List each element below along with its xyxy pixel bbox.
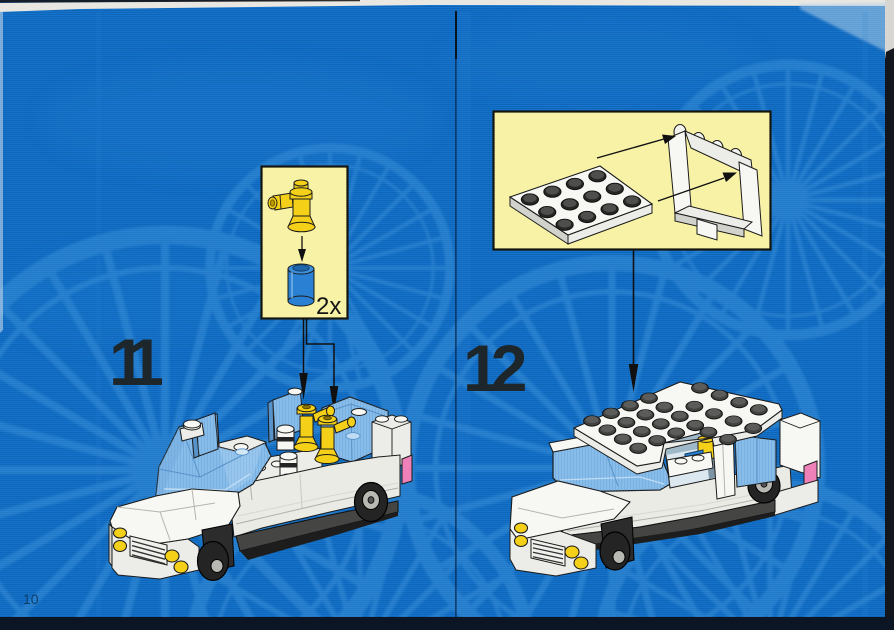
- svg-text:12: 12: [463, 331, 526, 405]
- svg-text:10: 10: [23, 591, 39, 607]
- svg-text:2x: 2x: [316, 293, 341, 320]
